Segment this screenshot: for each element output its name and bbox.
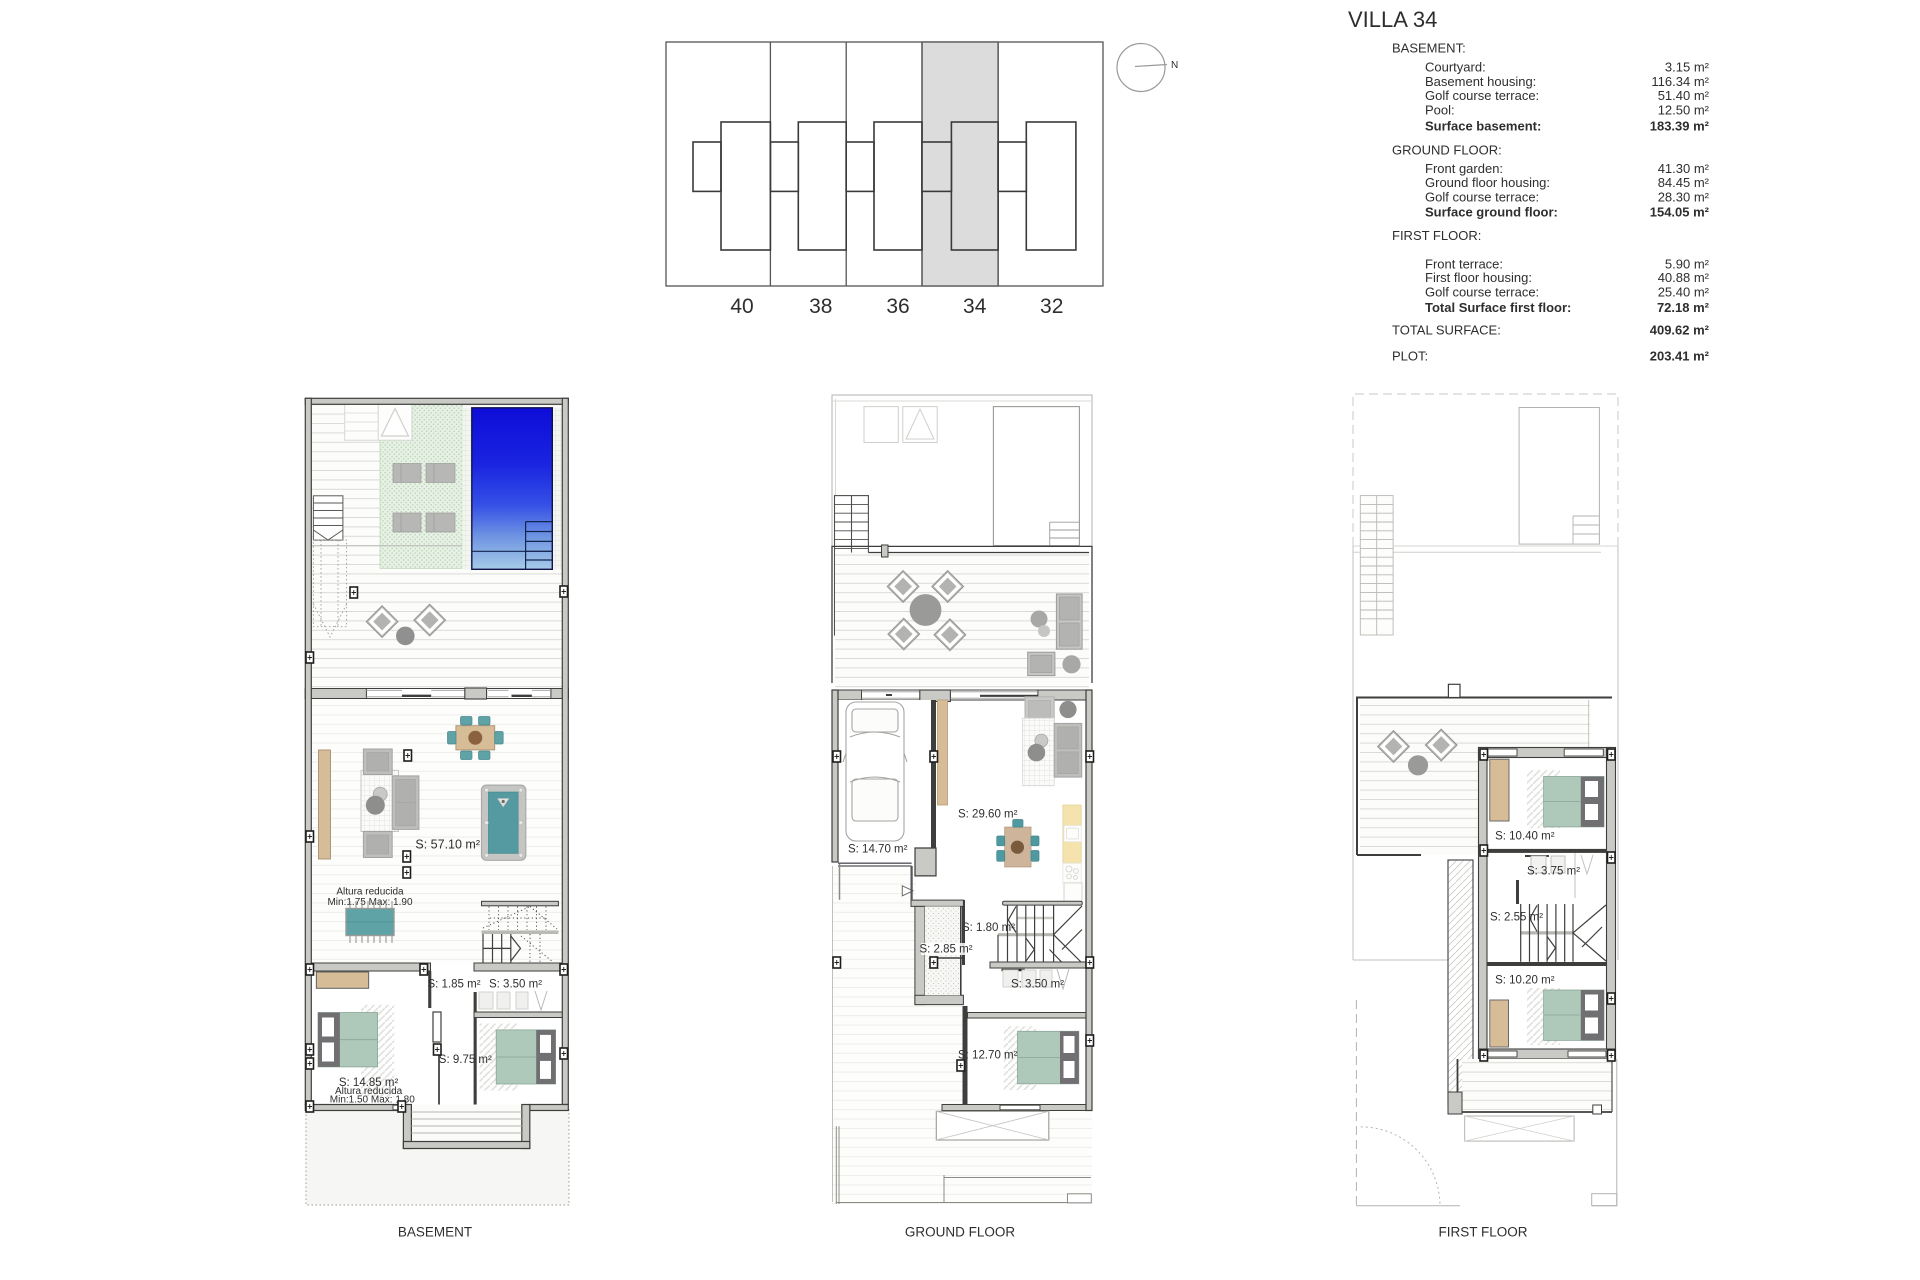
svg-text:154.05 m²: 154.05 m² [1650,204,1710,219]
svg-text:Golf course terrace:: Golf course terrace: [1425,88,1539,103]
svg-text:Front garden:: Front garden: [1425,161,1503,176]
svg-text:84.45 m²: 84.45 m² [1658,175,1710,190]
svg-text:S: 2.85 m²: S: 2.85 m² [920,944,973,956]
svg-text:409.62 m²: 409.62 m² [1650,323,1710,338]
svg-text:S: 1.80 m²: S: 1.80 m² [962,922,1015,934]
svg-text:S: 10.40 m²: S: 10.40 m² [1495,831,1555,843]
svg-text:S: 2.55 m²: S: 2.55 m² [1490,912,1543,924]
svg-text:38: 38 [809,295,832,318]
svg-text:Ground floor housing:: Ground floor housing: [1425,175,1550,190]
svg-text:51.40 m²: 51.40 m² [1658,88,1710,103]
svg-text:S: 9.75 m²: S: 9.75 m² [439,1054,492,1066]
svg-text:S: 14.70 m²: S: 14.70 m² [848,844,908,856]
svg-text:72.18 m²: 72.18 m² [1657,300,1710,315]
svg-text:S: 29.60 m²: S: 29.60 m² [958,809,1018,821]
svg-text:S: 10.20 m²: S: 10.20 m² [1495,975,1555,987]
svg-text:34: 34 [963,295,987,318]
svg-text:12.50 m²: 12.50 m² [1658,102,1710,117]
svg-text:Altura reducida: Altura reducida [336,887,404,898]
svg-text:Courtyard:: Courtyard: [1425,60,1486,75]
svg-text:Surface basement:: Surface basement: [1425,118,1541,133]
svg-text:Total Surface first floor:: Total Surface first floor: [1425,300,1571,315]
svg-text:32: 32 [1040,295,1063,318]
svg-text:VILLA 34: VILLA 34 [1348,7,1437,32]
svg-text:3.15 m²: 3.15 m² [1665,60,1710,75]
svg-text:Basement housing:: Basement housing: [1425,74,1536,89]
svg-text:S: 12.70 m²: S: 12.70 m² [958,1050,1018,1062]
svg-text:FIRST FLOOR:: FIRST FLOOR: [1392,228,1481,243]
svg-text:Pool:: Pool: [1425,102,1455,117]
svg-text:First floor housing:: First floor housing: [1425,270,1532,285]
svg-text:25.40 m²: 25.40 m² [1658,285,1710,300]
svg-text:PLOT:: PLOT: [1392,348,1428,363]
svg-text:N: N [1171,60,1178,71]
svg-text:BASEMENT:: BASEMENT: [1392,40,1466,55]
svg-text:Min:1.75 Max: 1.90: Min:1.75 Max: 1.90 [327,897,412,908]
svg-text:GROUND FLOOR:: GROUND FLOOR: [1392,143,1502,158]
svg-text:36: 36 [886,295,909,318]
svg-text:GROUND FLOOR: GROUND FLOOR [905,1225,1016,1240]
svg-text:40: 40 [730,295,753,318]
svg-text:41.30 m²: 41.30 m² [1658,161,1710,176]
svg-text:Golf course terrace:: Golf course terrace: [1425,285,1539,300]
svg-text:S: 1.85 m²: S: 1.85 m² [428,979,481,991]
svg-text:S: 3.50 m²: S: 3.50 m² [1011,979,1064,991]
svg-text:Surface ground floor:: Surface ground floor: [1425,204,1558,219]
svg-text:116.34 m²: 116.34 m² [1651,74,1709,89]
svg-text:203.41 m²: 203.41 m² [1650,348,1710,363]
svg-text:28.30 m²: 28.30 m² [1658,190,1710,205]
svg-text:Golf course terrace:: Golf course terrace: [1425,190,1539,205]
svg-text:S: 3.75 m²: S: 3.75 m² [1527,866,1580,878]
svg-text:183.39 m²: 183.39 m² [1650,118,1710,133]
svg-text:S: 57.10 m²: S: 57.10 m² [415,838,480,852]
svg-text:FIRST FLOOR: FIRST FLOOR [1438,1225,1527,1240]
svg-text:TOTAL SURFACE:: TOTAL SURFACE: [1392,323,1501,338]
svg-text:S: 3.50 m²: S: 3.50 m² [489,979,542,991]
svg-text:BASEMENT: BASEMENT [398,1225,472,1240]
svg-text:40.88 m²: 40.88 m² [1658,270,1710,285]
